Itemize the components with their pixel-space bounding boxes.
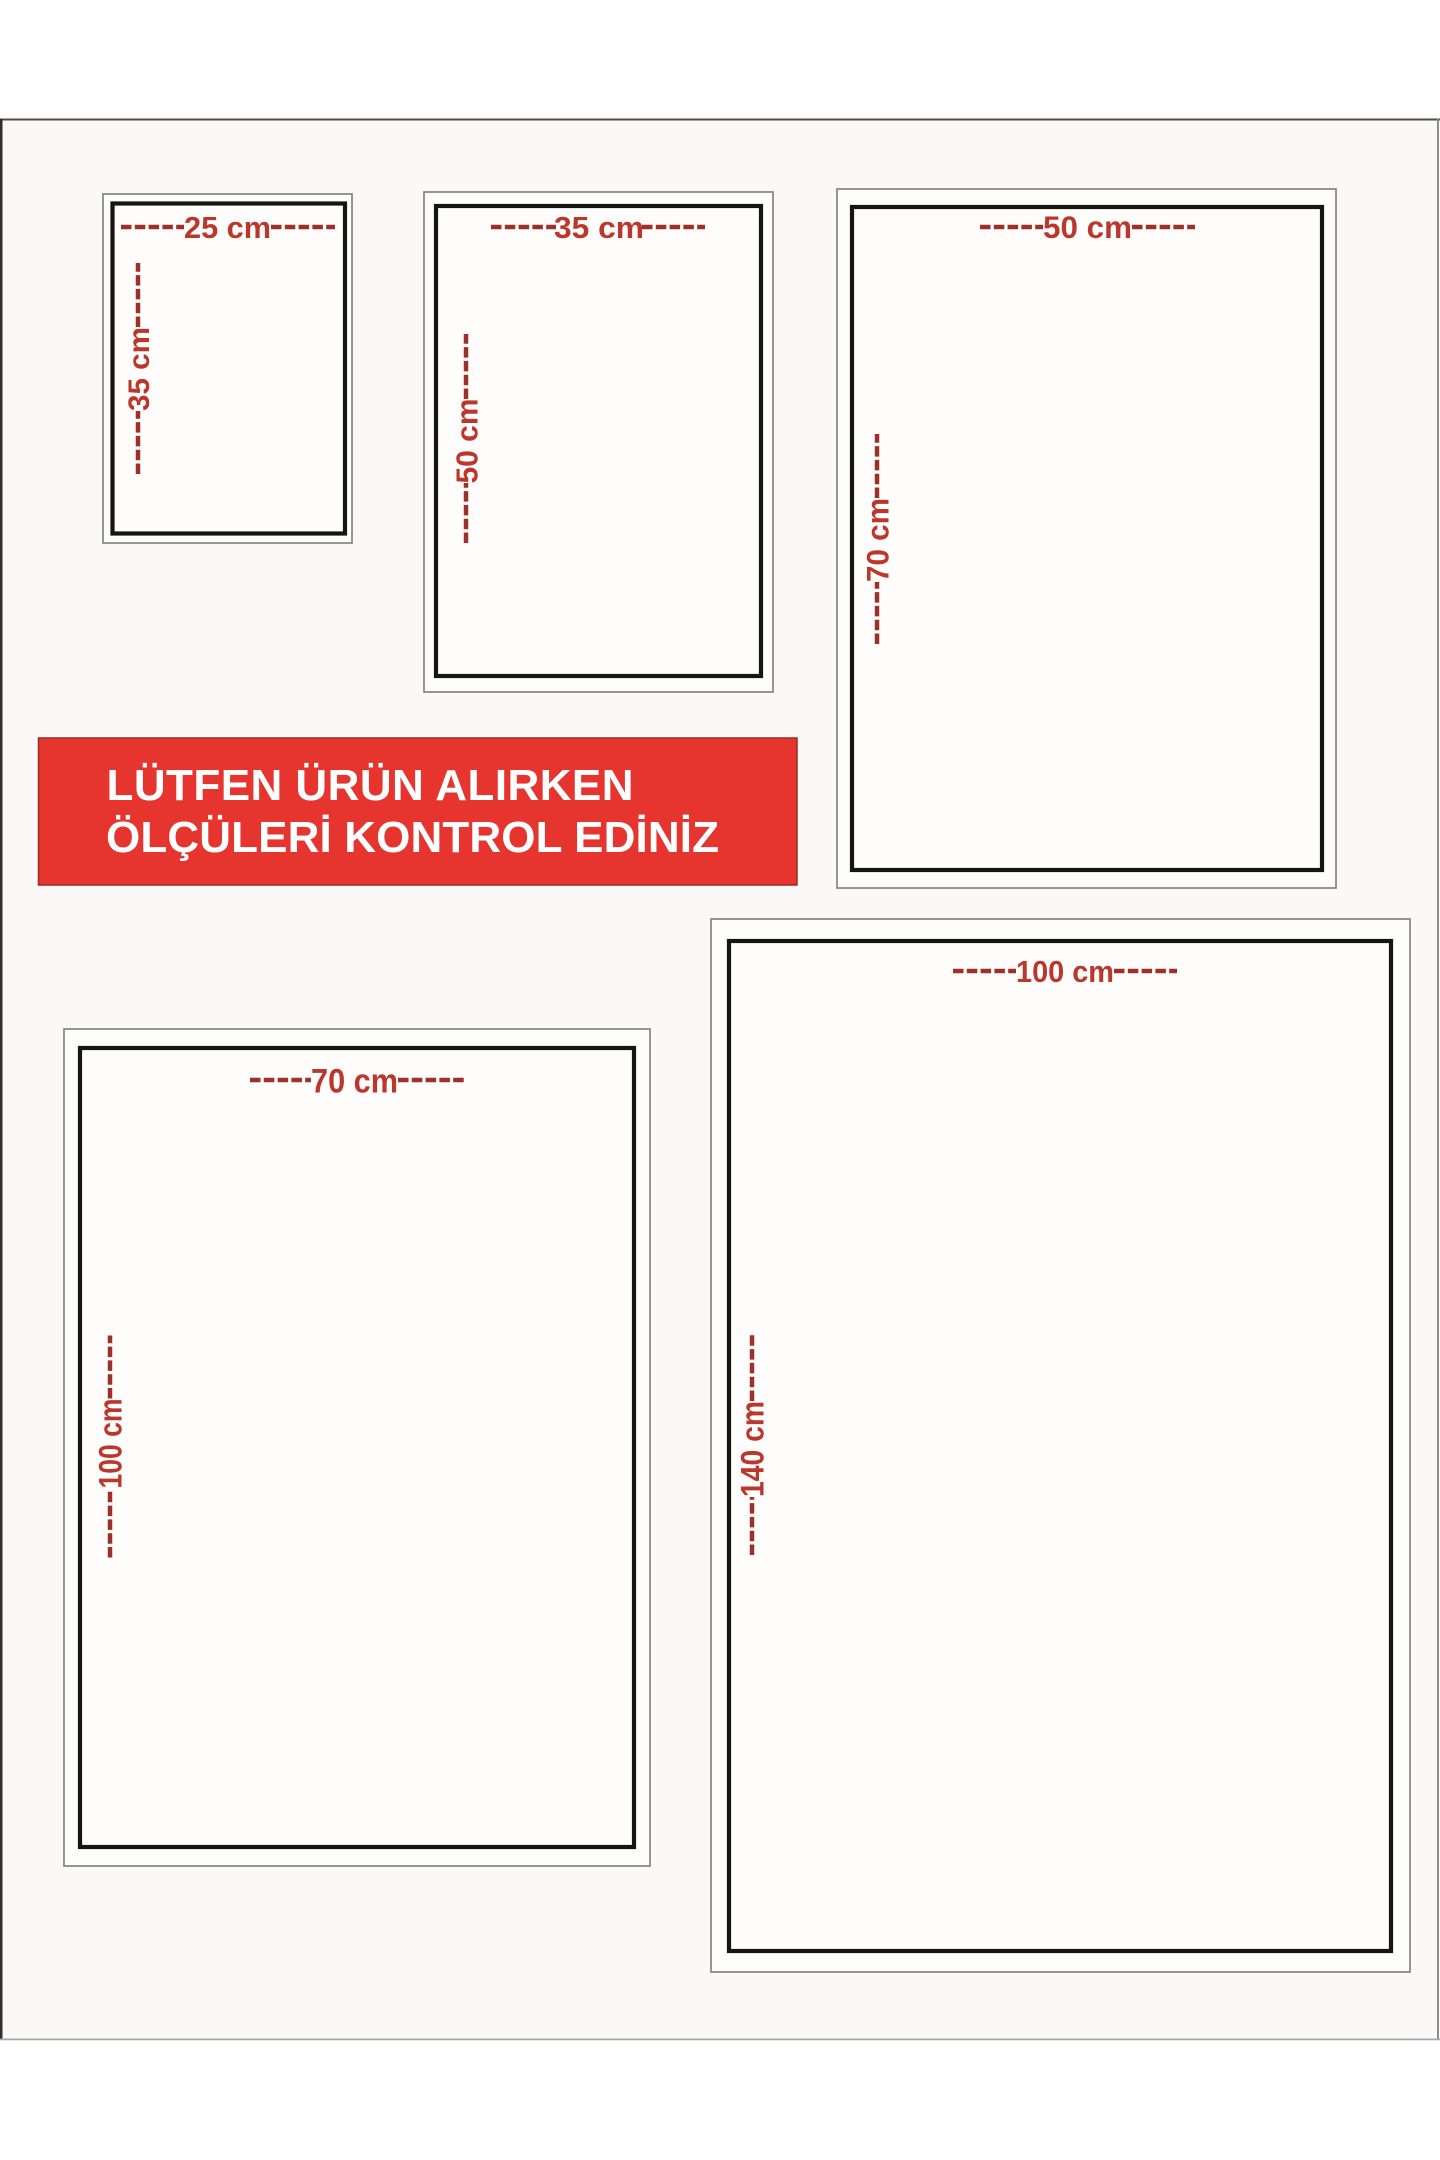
svg-text:50 cm: 50 cm	[450, 399, 485, 484]
svg-text:35 cm: 35 cm	[123, 327, 156, 411]
svg-text:ÖLÇÜLERİ KONTROL EDİNİZ: ÖLÇÜLERİ KONTROL EDİNİZ	[106, 813, 719, 862]
svg-text:140 cm: 140 cm	[735, 1401, 771, 1497]
svg-text:50 cm: 50 cm	[1043, 209, 1132, 245]
svg-text:70 cm: 70 cm	[860, 498, 896, 582]
svg-text:25 cm: 25 cm	[184, 210, 271, 245]
svg-text:35 cm: 35 cm	[554, 210, 644, 245]
svg-text:LÜTFEN ÜRÜN ALIRKEN: LÜTFEN ÜRÜN ALIRKEN	[107, 761, 634, 810]
svg-text:100 cm: 100 cm	[93, 1399, 129, 1489]
svg-text:70 cm: 70 cm	[311, 1063, 398, 1101]
svg-text:100 cm: 100 cm	[1016, 954, 1114, 989]
